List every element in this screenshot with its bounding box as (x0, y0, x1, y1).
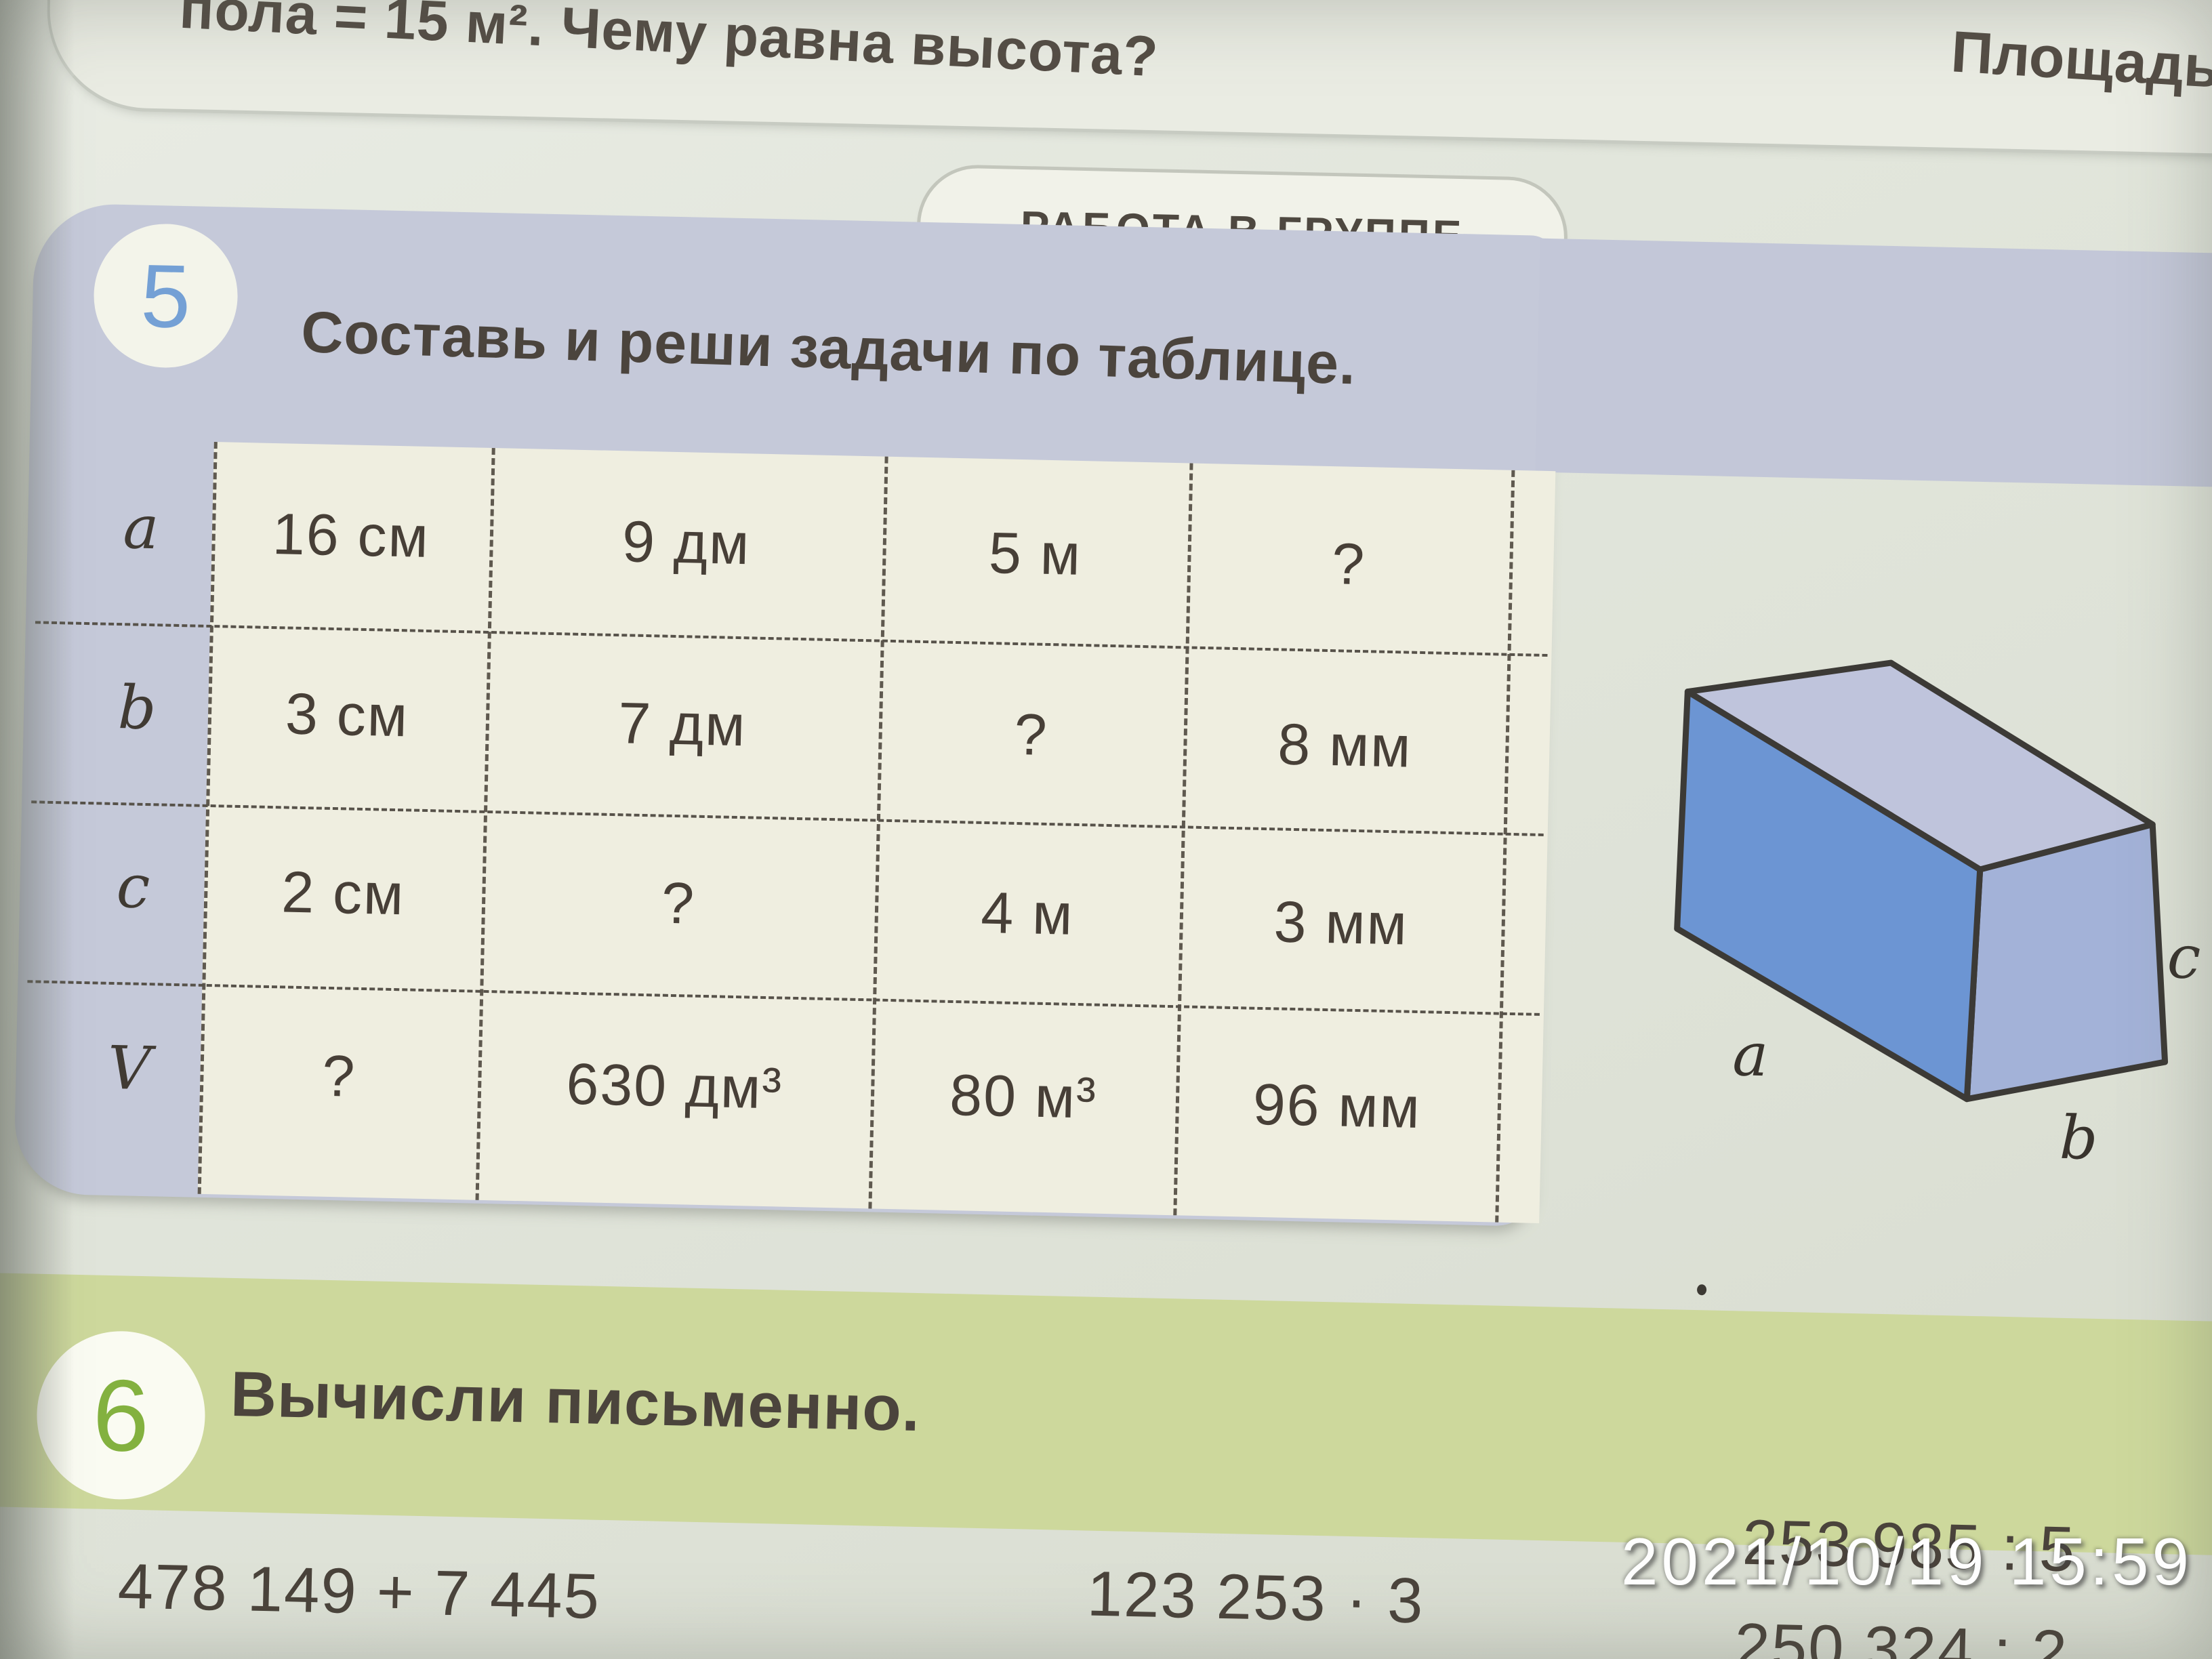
table-cell: 630 дм³ (566, 1051, 783, 1123)
table-cell: 3 см (285, 680, 409, 750)
camera-timestamp: 2021/10/19 15:59 (1621, 1523, 2192, 1600)
task6-title: Вычисли письменно. (230, 1357, 921, 1446)
expression: 123 253 · 3 (1086, 1557, 1425, 1638)
table-cell: 7 дм (617, 690, 747, 760)
cuboid-edge-label-c: c (2167, 922, 2202, 992)
textbook-page-photo: пола = 15 м². Чему равна высота? Площадь… (0, 0, 2212, 1659)
table-cell: ? (321, 1043, 356, 1111)
cuboid-side-face (1967, 821, 2170, 1103)
table-row-label: a (100, 491, 182, 563)
page-content: пола = 15 м². Чему равна высота? Площадь… (0, 0, 2211, 1659)
table-row-label: b (96, 672, 178, 743)
photo-speck (1697, 1284, 1706, 1295)
task6-number: 6 (91, 1356, 150, 1475)
expression: 39 487 · 6 (1084, 1650, 1387, 1659)
task5-header-band (1535, 239, 2212, 489)
table-row-label: c (91, 851, 174, 922)
page-edge-shadow (0, 0, 75, 1659)
table-cell: 2 см (281, 859, 405, 928)
table-cell: 80 м³ (949, 1062, 1097, 1132)
table-cell: ? (1331, 531, 1366, 598)
expression: 95 035 − 49 145 (115, 1651, 599, 1659)
table-row-label: V (88, 1032, 171, 1104)
cuboid-edge-label-b: b (2059, 1103, 2099, 1173)
table-cell: 96 мм (1252, 1071, 1422, 1142)
task5-number: 5 (140, 244, 192, 348)
table-cell: ? (661, 870, 696, 938)
table-cell: 5 м (988, 520, 1082, 589)
table-cell: 3 мм (1273, 888, 1409, 958)
cuboid-figure (1629, 629, 2203, 1183)
expression: 250 324 : 2 (1734, 1609, 2069, 1659)
table-cell: 4 м (980, 880, 1074, 949)
cuboid-edge-label-a: a (1732, 1019, 1769, 1090)
table-cell: ? (1014, 701, 1049, 769)
table-cell: 16 см (272, 501, 430, 571)
expression: 478 149 + 7 445 (117, 1549, 601, 1633)
table-cell: 9 дм (621, 508, 751, 578)
table-cell: 8 мм (1277, 711, 1412, 781)
